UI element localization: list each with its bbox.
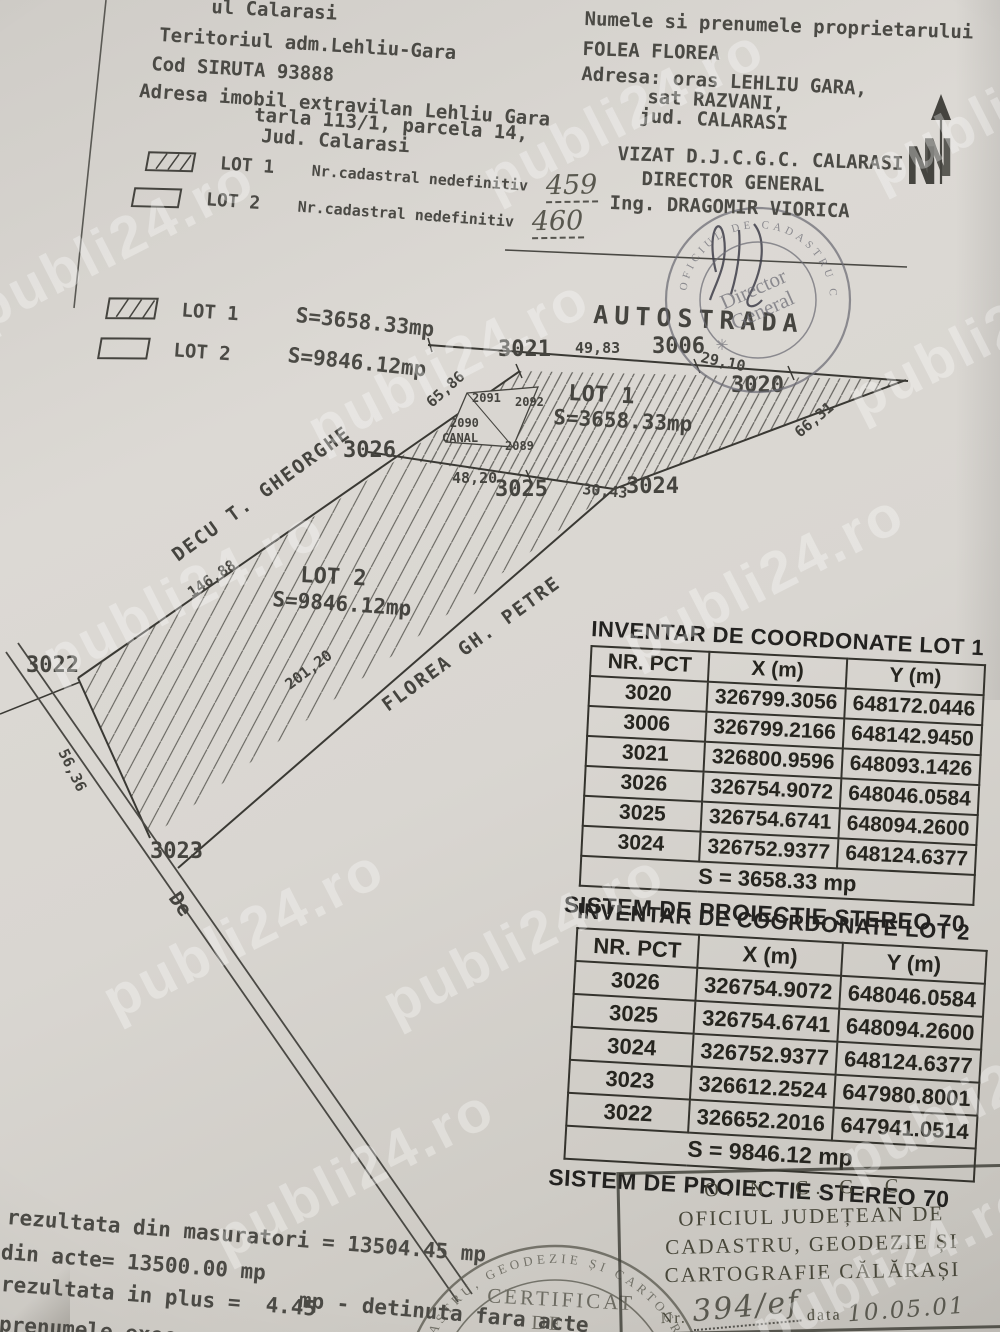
area-lot2-label: LOT 2 <box>173 339 232 365</box>
north-arrow: N N <box>906 94 953 197</box>
oncgc-data-value: 10.05.01 <box>847 1293 967 1328</box>
oncgc-line4: CARTOGRAFIE CĂLĂRAȘI <box>623 1256 1000 1289</box>
lot2-parcel <box>78 459 614 838</box>
legend-lot1-label: LOT 1 <box>219 153 275 178</box>
oncgc-line1: O. N. C. G. C. <box>622 1173 1000 1204</box>
lot1-map-label: LOT 1 <box>568 381 635 409</box>
point-3025: 3025 <box>495 477 548 502</box>
dim-56-36: 56,36 <box>54 746 90 794</box>
point-3020: 3020 <box>731 373 784 398</box>
lot2-area-swatch <box>95 332 153 364</box>
coordinates-table-lot1: INVENTAR DE COORDONATE LOT 1 NR. PCT X (… <box>577 616 987 938</box>
lot1-cadastral-number: 459 <box>545 169 597 203</box>
lot1-area-swatch <box>103 292 161 324</box>
table-lot1: NR. PCT X (m) Y (m) 3020326799.305664817… <box>579 645 986 906</box>
point-2091: 2091 <box>472 391 501 405</box>
point-3024: 3024 <box>626 474 679 499</box>
oncgc-line2: OFICIUL JUDEȚEAN DE <box>622 1200 1000 1233</box>
dim-49-83: 49,83 <box>575 339 620 357</box>
page-edge-line <box>74 0 106 308</box>
lot1-hatched-swatch <box>144 147 198 175</box>
point-2092: 2092 <box>515 395 544 409</box>
point-2090: 2090 <box>450 416 479 430</box>
table-lot2: NR. PCT X (m) Y (m) 3026326754.907264804… <box>563 927 987 1183</box>
dim-48-20: 48,20 <box>452 469 497 487</box>
oncgc-line3: CADASTRU, GEODEZIE ȘI <box>623 1228 1000 1261</box>
oncgc-nr-label: Nr. <box>661 1310 687 1329</box>
point-3023: 3023 <box>150 839 203 864</box>
oncgc-nr-value: 394/ef <box>691 1285 802 1332</box>
point-2089: 2089 <box>505 439 534 453</box>
boundary-tick-3022 <box>0 682 80 714</box>
north-letter-ghost: N <box>922 129 953 189</box>
lot2-map-label: LOT 2 <box>300 563 367 591</box>
oncgc-stamp: O. N. C. G. C. OFICIUL JUDEȚEAN DE CADAS… <box>616 1164 1000 1332</box>
area-lot1-label: LOT 1 <box>181 299 240 325</box>
scanned-cadastral-document: AUTOSTRADA 3021 49,83 3006 29,10 3020 LO… <box>0 0 1000 1332</box>
canal-label: CANAL <box>442 431 478 445</box>
legend-lot2-label: LOT 2 <box>205 189 261 214</box>
oncgc-number-row: Nr. 394/ef data 10.05.01 <box>624 1284 1000 1329</box>
oncgc-data-label: data <box>807 1306 842 1325</box>
lot2-empty-swatch <box>130 183 184 211</box>
north-arrow-head <box>931 94 951 120</box>
point-3022: 3022 <box>26 653 79 678</box>
stamp-top-star: ✳ <box>716 331 728 355</box>
lot2-cadastral-number: 460 <box>531 205 583 239</box>
point-3021: 3021 <box>498 337 551 362</box>
